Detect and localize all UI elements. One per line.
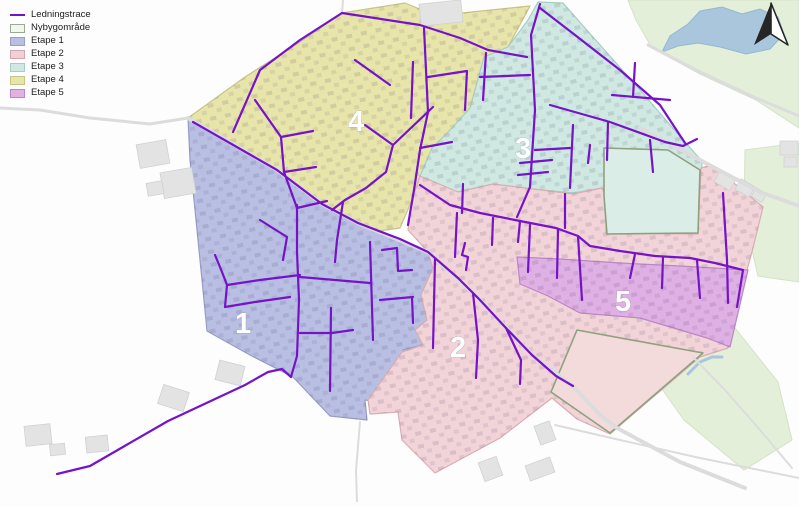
building-0 (136, 140, 170, 169)
ledningstrace-line-59 (330, 308, 331, 391)
legend-label: Etape 4 (31, 75, 64, 85)
legend-item: Etape 3 (10, 62, 91, 72)
legend-item: Etape 2 (10, 49, 91, 59)
ledningstrace-line-44 (462, 184, 463, 213)
building-5 (85, 435, 109, 453)
road-7 (342, 0, 343, 13)
legend-label: Etape 5 (31, 88, 64, 98)
zone-label-4: 4 (348, 106, 364, 138)
legend-swatch-1 (10, 24, 25, 33)
legend-label: Nybygområde (31, 23, 90, 33)
legend-swatch-4 (10, 63, 25, 72)
building-3 (24, 424, 52, 447)
legend-label: Ledningstrace (31, 10, 91, 20)
legend-swatch-6 (10, 89, 25, 98)
legend-label: Etape 3 (31, 62, 64, 72)
map-canvas: 43125 (0, 0, 799, 502)
legend-swatch-5 (10, 76, 25, 85)
legend-swatch-0 (10, 14, 25, 16)
ledningstrace-line-38 (557, 230, 558, 278)
zone-label-2: 2 (450, 332, 466, 364)
legend-item: Ledningstrace (10, 10, 91, 20)
ledningstrace-line-35 (492, 218, 493, 245)
legend-swatch-3 (10, 50, 25, 59)
legend-swatch-2 (10, 37, 25, 46)
north-arrow-icon (751, 0, 795, 50)
building-1 (160, 167, 196, 198)
building-2 (146, 181, 164, 197)
legend: Ledningstrace Nybygområde Etape 1 Etape … (6, 6, 97, 102)
building-4 (49, 443, 65, 456)
ledningstrace-line-41 (662, 257, 663, 288)
zone-label-3: 3 (515, 133, 531, 165)
map-svg: 43125 (0, 0, 799, 502)
building-15 (780, 141, 798, 155)
legend-label: Etape 2 (31, 49, 64, 59)
zone-label-5: 5 (615, 286, 631, 318)
zone-label-1: 1 (235, 308, 251, 340)
ledningstrace-line-58 (412, 297, 413, 323)
legend-item: Etape 4 (10, 75, 91, 85)
legend-label: Etape 1 (31, 36, 64, 46)
legend-item: Nybygområde (10, 23, 91, 33)
building-16 (784, 157, 797, 167)
ledningstrace-line-23 (607, 122, 608, 160)
legend-item: Etape 5 (10, 88, 91, 98)
building-11 (419, 0, 463, 26)
legend-item: Etape 1 (10, 36, 91, 46)
